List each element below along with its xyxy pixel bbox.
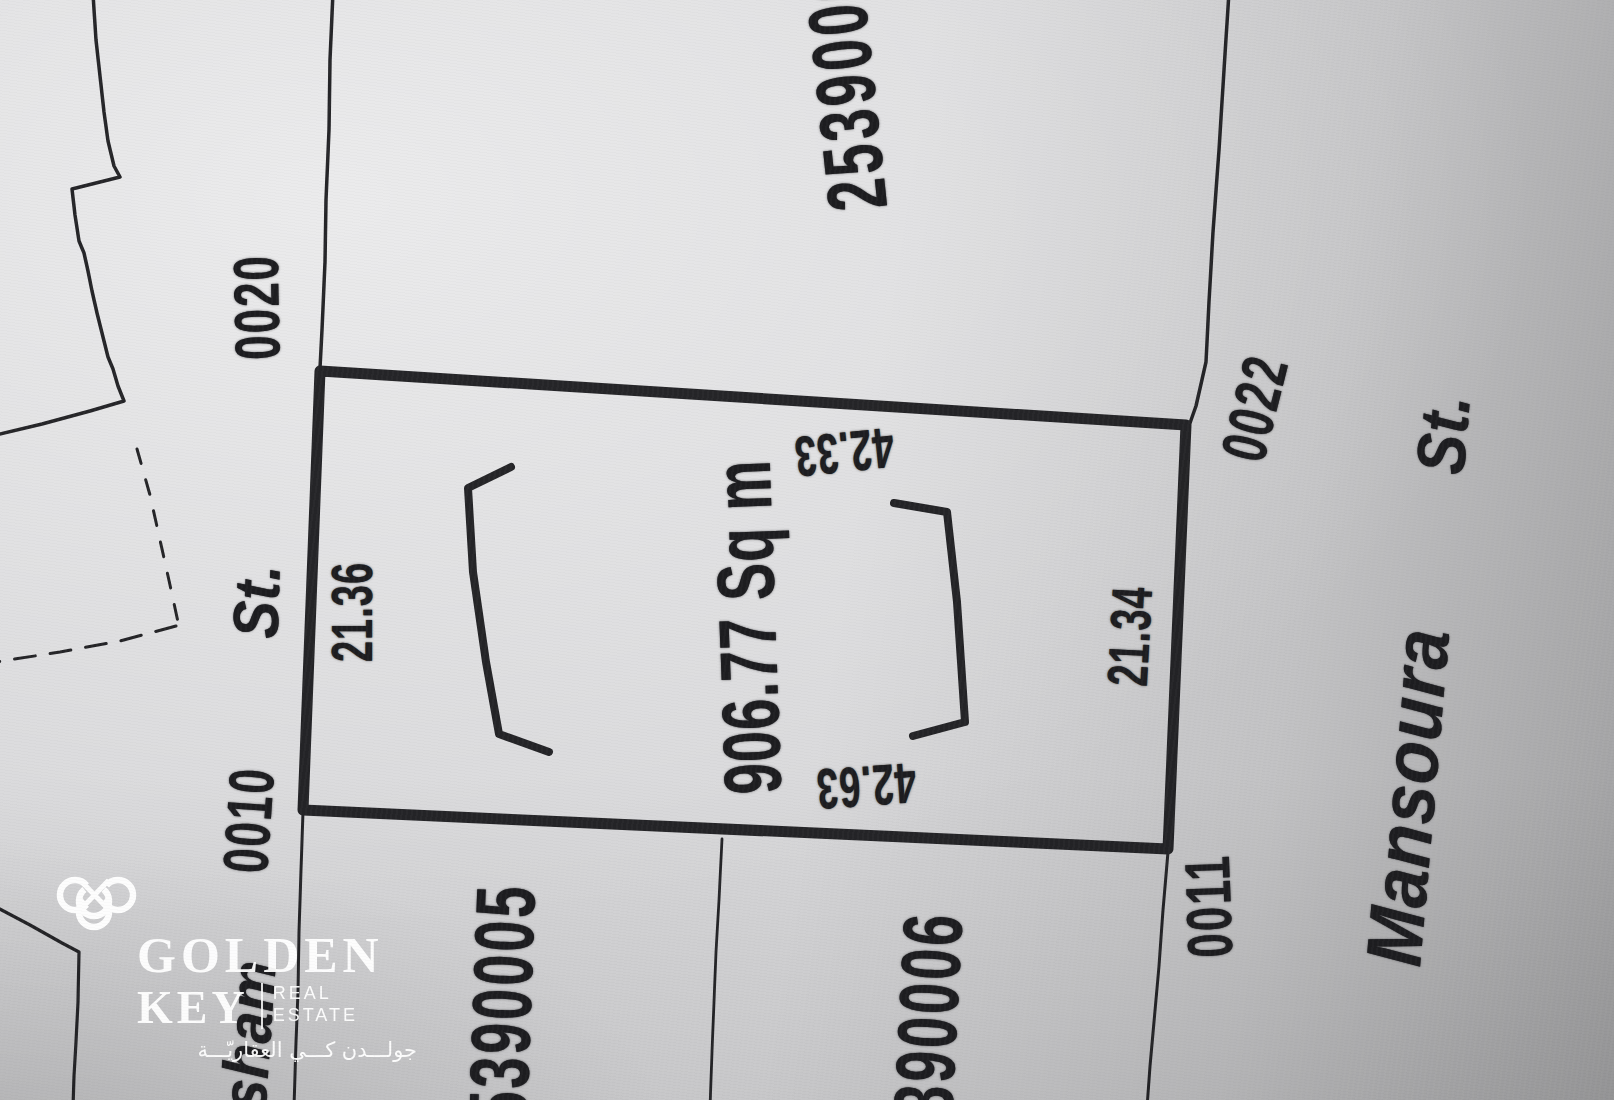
- street-line-left-upper: [320, 0, 333, 368]
- watermark-brand-key: KEY: [137, 986, 249, 1030]
- neighbor-boundary-topleft: [0, 0, 124, 435]
- bracket-right-mark: [894, 503, 965, 736]
- street-right-suffix: St.: [1406, 391, 1482, 476]
- plot-area-label: 906.77 Sq m: [702, 458, 795, 795]
- dimension-bottom-label: 42.63: [814, 754, 918, 818]
- street-left-suffix: St.: [224, 563, 291, 640]
- plot-number-lower-left: 0010: [213, 765, 284, 875]
- boundary-dashed-lower: [0, 626, 176, 662]
- parcel-divider-bottom: [710, 839, 722, 1100]
- dimension-left-label: 21.36: [324, 562, 381, 662]
- survey-map-photo: 0020 2539000 0022 St. Mansoura St. sham …: [0, 0, 1614, 1100]
- watermark-brand-golden: GOLDEN: [137, 930, 417, 980]
- boundary-dashed-upper: [137, 449, 178, 622]
- street-line-right-upper: [1190, 0, 1229, 423]
- dimension-top-label: 42.33: [791, 418, 897, 485]
- watermark-realestate-label: REAL ESTATE: [261, 983, 417, 1029]
- plot-number-lower-right: 0011: [1175, 853, 1242, 959]
- parcel-number-left: 25390005: [455, 882, 548, 1100]
- plot-number-upper-left: 0020: [224, 254, 290, 361]
- parcel-number-top: 2539000: [791, 0, 900, 215]
- bracket-left-mark: [468, 467, 549, 752]
- street-line-right-lower: [1147, 852, 1168, 1100]
- watermark-arabic-label: جولـــدن كـــي العقاريّـــة: [137, 1038, 417, 1062]
- dimension-right-label: 21.34: [1099, 585, 1161, 688]
- golden-key-logo-icon: [54, 854, 146, 946]
- parcel-number-bottom: 25390006: [878, 909, 976, 1100]
